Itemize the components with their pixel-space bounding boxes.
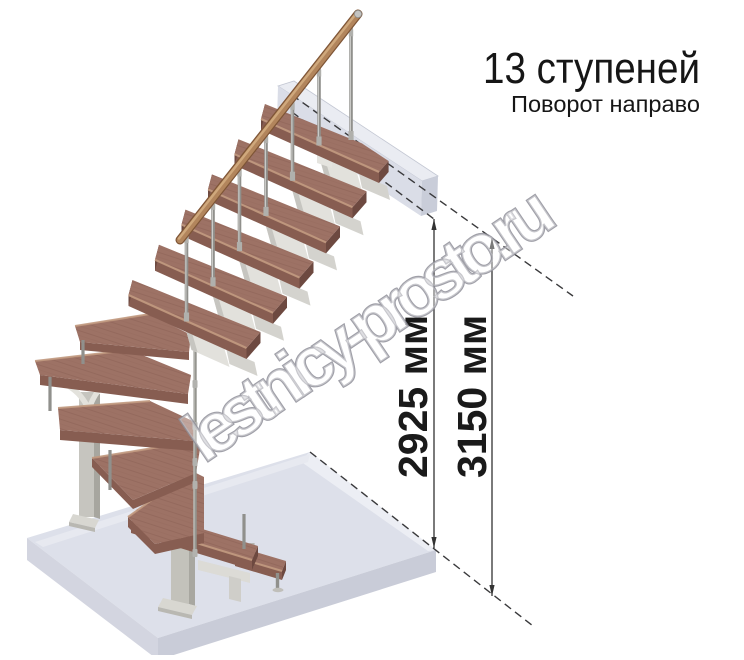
svg-text:13 ступеней: 13 ступеней bbox=[483, 44, 700, 93]
svg-text:Поворот направо: Поворот направо bbox=[511, 91, 700, 117]
svg-text:3150 мм: 3150 мм bbox=[449, 315, 495, 478]
